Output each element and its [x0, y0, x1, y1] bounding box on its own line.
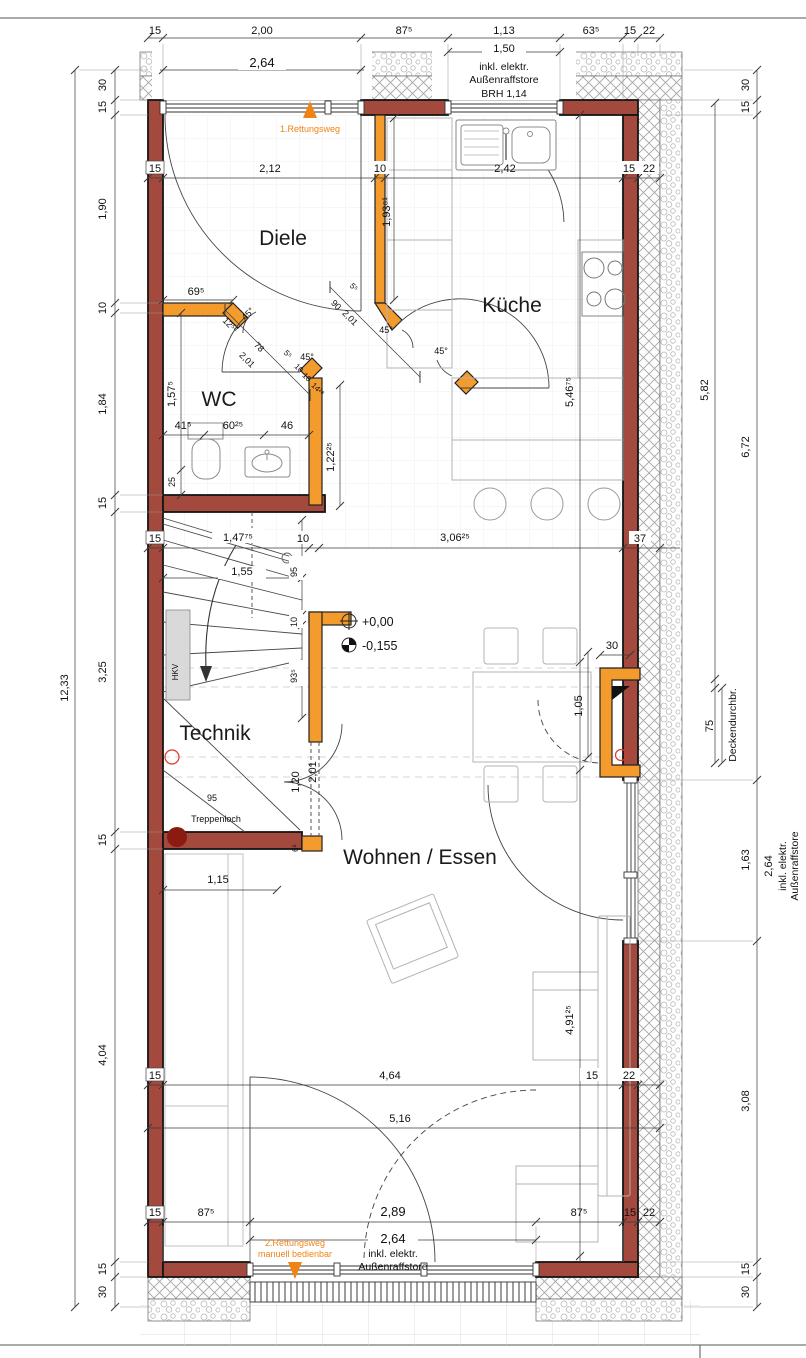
room-label-wc: WC	[202, 388, 237, 411]
dim-label: 87⁵	[571, 1207, 588, 1219]
dim-label: 1,93⁸¹	[381, 197, 393, 227]
dim-label: 15	[97, 101, 109, 113]
dim-label: 45°	[434, 346, 448, 356]
dim-label: 15	[149, 1070, 161, 1082]
dim-label: 60²⁵	[223, 420, 243, 432]
terrace-window-note: Außenraffstore	[358, 1261, 427, 1273]
dim-label: 22	[643, 25, 655, 37]
furniture	[165, 628, 630, 1246]
dim-label: 10	[97, 302, 109, 314]
dim-label: 22	[623, 1070, 635, 1082]
terrace-window-note: inkl. elektr.	[368, 1248, 418, 1260]
room-label-kueche: Küche	[482, 294, 542, 317]
dim-label: 2,89	[380, 1204, 405, 1219]
dim-label: 15	[97, 834, 109, 846]
wc-south-wall	[163, 495, 325, 512]
dim-label: 87⁵	[396, 25, 413, 37]
dim-label: 5,46⁷⁵	[564, 377, 576, 407]
dim-label: 46	[281, 420, 293, 432]
kitchen-window-note: Außenraffstore	[469, 74, 538, 86]
floor-plan-sheet: HKV	[0, 0, 806, 1358]
dim-label: 37	[634, 533, 646, 545]
dim-label: 1,84	[97, 393, 109, 414]
dim-label: 2,12	[259, 163, 280, 175]
dim-label: 15	[740, 1263, 752, 1275]
dim-label: 15	[149, 1207, 161, 1219]
dim-label: 1,22²⁵	[325, 442, 337, 472]
dim-label: 22	[643, 163, 655, 175]
kitchen-window-brh: BRH 1,14	[481, 88, 527, 100]
dim-label: 1,63	[740, 849, 752, 870]
dim-label: 15	[586, 1070, 598, 1082]
level-zero-label: +0,00	[362, 615, 394, 629]
hkv-box: HKV	[166, 610, 190, 700]
dim-label: 4,64	[379, 1070, 400, 1082]
escape-route-2-label: manuell bedienbar	[258, 1249, 332, 1259]
dim-label: 63⁵	[583, 25, 600, 37]
entrance-window	[160, 101, 364, 114]
dim-label: 15	[149, 25, 161, 37]
dim-label: 87⁵	[198, 1207, 215, 1219]
room-label-wohnen: Wohnen / Essen	[343, 846, 497, 869]
dim-label: 15	[149, 163, 161, 175]
escape-route-2-label: 2.Rettungsweg	[265, 1238, 325, 1248]
dim-label: 1,15	[207, 874, 228, 886]
stair-partition	[309, 612, 322, 742]
dim-label: 15	[97, 497, 109, 509]
red-dot-marker	[167, 827, 187, 847]
stair-arrowhead	[200, 666, 212, 682]
dim-label: 10	[297, 533, 309, 545]
right-window-note: inkl. elektr.	[777, 841, 789, 891]
floor-plan-drawing: HKV	[0, 0, 806, 1358]
dim-label: 15	[623, 163, 635, 175]
dim-label: 1,57⁵	[166, 381, 178, 407]
dim-label: 1,20	[290, 771, 302, 792]
room-label-diele: Diele	[259, 227, 307, 250]
dim-label: 2,00	[251, 25, 272, 37]
right-door-swing	[488, 785, 623, 920]
dim-label: 30	[740, 1286, 752, 1298]
deckendurchbruch-label: Deckendurchbr.	[727, 688, 739, 762]
dim-label: 6⁵	[291, 844, 300, 852]
dim-label: 15	[624, 1207, 636, 1219]
dim-label: 4,91²⁵	[564, 1005, 576, 1035]
kitchen-window-note: inkl. elektr.	[479, 61, 529, 73]
dim-label: 1,13	[493, 25, 514, 37]
kitchen-window-width: 1,50	[493, 43, 514, 55]
dim-label: 3,08	[740, 1090, 752, 1111]
dim-label: 15	[97, 1263, 109, 1275]
dim-label: 5,82	[699, 379, 711, 400]
dim-label: 45°	[379, 325, 393, 335]
dim-label: 3,25	[97, 661, 109, 682]
dim-label: 1,90	[97, 198, 109, 219]
dim-label: 5,16	[389, 1113, 410, 1125]
escape-route-1-label: 1.Rettungsweg	[280, 124, 340, 134]
wc-north-wall	[163, 303, 233, 316]
level-marker-minus	[342, 638, 356, 652]
dim-label: 15	[624, 25, 636, 37]
dim-label: 15	[740, 101, 752, 113]
hkv-label: HKV	[171, 663, 180, 680]
dim-label: 45°	[300, 352, 314, 362]
dim-label: 1,05	[573, 695, 585, 716]
dim-label: 22	[643, 1207, 655, 1219]
partition-end-stub	[302, 836, 322, 851]
dim-label: 15	[149, 533, 161, 545]
stair-arrow	[206, 545, 236, 668]
top-window-width: 2,64	[249, 55, 274, 70]
sideboard	[165, 854, 243, 1246]
dim-label: 30	[606, 640, 618, 652]
treppenloch-label: Treppenloch	[191, 814, 241, 824]
dim-label: 75	[704, 720, 716, 732]
dim-label: 4,04	[97, 1044, 109, 1065]
armchair	[366, 894, 458, 984]
dim-label: 2,42	[494, 163, 515, 175]
sofa	[516, 916, 630, 1242]
dim-label: 6,72	[740, 436, 752, 457]
dim-label: 1,55	[231, 566, 252, 578]
dim-total-height: 12,33	[59, 674, 71, 702]
dim-label: 2,01	[307, 761, 319, 782]
dim-label: 93⁵	[289, 669, 299, 683]
dim-label: 30	[97, 79, 109, 91]
dim-label: 10	[289, 617, 299, 627]
right-window-width: 2,64	[763, 855, 775, 876]
kitchen-window	[445, 101, 563, 114]
dim-label: 25	[167, 477, 177, 487]
dim-label: 10	[374, 163, 386, 175]
treppenloch-dim: 95	[207, 793, 217, 803]
dim-label: 3,06²⁵	[440, 532, 470, 544]
level-minus-label: -0,155	[362, 639, 397, 653]
dim-label: 1,47⁷⁵	[223, 532, 253, 544]
dim-label: 30	[97, 1286, 109, 1298]
dim-label: 69⁵	[188, 286, 205, 298]
right-window-note: Außenraffstore	[789, 831, 801, 900]
dim-label: 30	[740, 79, 752, 91]
dim-label: 41⁵	[175, 420, 192, 432]
room-label-technik: Technik	[179, 722, 251, 745]
terrace-sill	[250, 1282, 536, 1302]
dim-label: 95	[289, 567, 299, 577]
top-window-annotation-box	[152, 44, 372, 100]
terrace-window-width: 2,64	[380, 1231, 405, 1246]
